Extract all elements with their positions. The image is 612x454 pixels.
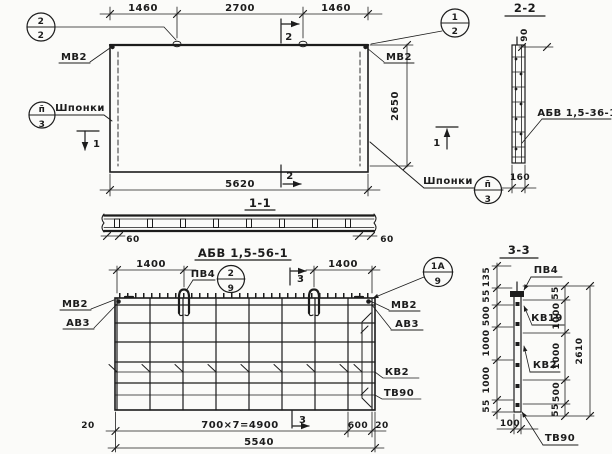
reinforcement-plan: 1400 1400 3 ПВ4 2 9 1А — [60, 258, 453, 453]
notch-break-line — [361, 313, 371, 407]
dim-20-right: 20 — [375, 421, 389, 431]
detail-marker-2-9: 2 9 — [217, 266, 245, 295]
detail-marker-1-2: 1 2 — [371, 9, 469, 44]
dim-160: 160 — [502, 165, 536, 193]
section-cut-3-top: 3 — [290, 268, 306, 285]
dim-1460-right: 1460 — [321, 3, 351, 14]
dim-1400-right: 1400 — [306, 259, 380, 293]
panel-engineering-drawing: 1460 2700 1460 2 МВ2 МВ2 2 2 — [0, 0, 612, 454]
detail-marker-2-2: 2 2 — [27, 13, 176, 41]
dim-20-left: 20 — [81, 421, 95, 431]
label-tv90-3-3: ТВ90 — [522, 412, 578, 445]
section-2-2-bar — [512, 45, 525, 163]
dim-2700: 2700 — [225, 3, 255, 14]
section-cut-1-right: 1 — [433, 127, 458, 149]
svg-text:АВ3: АВ3 — [66, 318, 90, 329]
top-dim-chain: 1460 2700 1460 — [100, 3, 382, 38]
section-1-1-rungs — [115, 219, 351, 228]
section-1-1: 1-1 60 60 АБВ 1,5-56- — [101, 196, 394, 260]
plan-view: 1460 2700 1460 2 МВ2 МВ2 2 2 — [27, 3, 503, 205]
svg-text:90: 90 — [520, 28, 530, 42]
svg-text:60: 60 — [126, 235, 140, 245]
svg-text:3: 3 — [299, 415, 306, 426]
svg-text:ТВ90: ТВ90 — [545, 433, 575, 444]
bar-label-kv2: КВ2 — [385, 367, 409, 378]
svg-text:1400: 1400 — [328, 259, 358, 270]
section-cut-2-top: 2 — [281, 19, 299, 43]
svg-text:МВ2: МВ2 — [61, 52, 87, 63]
svg-text:55: 55 — [482, 289, 492, 303]
svg-text:МВ2: МВ2 — [391, 300, 417, 311]
svg-text:5620: 5620 — [225, 179, 255, 190]
svg-text:МВ2: МВ2 — [386, 52, 412, 63]
section-cut-3-bottom: 3 — [292, 411, 309, 428]
anchor-label-mv2-grid-right: МВ2 — [370, 300, 420, 311]
anchor-label-mv2-grid-left: МВ2 — [60, 299, 114, 310]
svg-text:60: 60 — [380, 235, 394, 245]
dim-spacing: 700×7=4900 — [201, 420, 278, 431]
svg-text:2650: 2650 — [390, 91, 401, 121]
section-2-2: 2-2 90 АБВ 1,5-36-1 — [502, 1, 612, 193]
svg-text:1А: 1А — [431, 262, 445, 272]
svg-text:п̄: п̄ — [485, 180, 492, 190]
section-cut-2-bottom: 2 — [281, 165, 301, 187]
svg-text:500: 500 — [552, 382, 562, 402]
section-3-3: 3-3 — [482, 243, 594, 445]
svg-text:1000: 1000 — [482, 329, 492, 356]
svg-text:ПВ4: ПВ4 — [191, 269, 215, 280]
svg-text:9: 9 — [435, 277, 442, 287]
width-dim-5620: 5620 — [100, 174, 380, 196]
panel-outline — [110, 45, 368, 172]
svg-text:3: 3 — [39, 120, 46, 130]
left-dim-chain: 135 55 500 1000 1000 55 — [482, 263, 513, 420]
lifting-loop-right — [309, 290, 319, 316]
svg-text:2610: 2610 — [575, 337, 585, 364]
mesh-label-2-2: АБВ 1,5-36-1 — [522, 108, 612, 143]
svg-text:9: 9 — [228, 284, 235, 294]
mesh-vertical-bars — [117, 298, 372, 410]
dim-1460-left: 1460 — [128, 3, 158, 14]
dim-60-left: 60 — [101, 233, 140, 246]
svg-text:135: 135 — [482, 267, 492, 287]
svg-text:55: 55 — [551, 286, 561, 300]
section-cut-1-left: 1 — [77, 131, 100, 150]
dim-90: 90 — [519, 28, 554, 50]
svg-text:100: 100 — [500, 419, 520, 429]
anchor-label-mv2-left: МВ2 — [59, 48, 110, 63]
bottom-dim-chain: 20 700×7=4900 600 20 — [81, 412, 389, 452]
dim-1400-left: 1400 — [109, 259, 196, 293]
svg-text:160: 160 — [510, 173, 530, 183]
svg-text:АВ3: АВ3 — [395, 319, 419, 330]
svg-text:МВ2: МВ2 — [62, 299, 88, 310]
svg-text:55: 55 — [551, 403, 561, 417]
svg-text:3: 3 — [485, 195, 492, 205]
svg-text:1: 1 — [452, 13, 459, 23]
key-dashed-lines — [118, 52, 360, 166]
svg-text:п̄: п̄ — [39, 105, 46, 115]
total-dim-2610: 2610 — [575, 283, 594, 420]
drawing-sheet: 1460 2700 1460 2 МВ2 МВ2 2 2 — [0, 0, 612, 454]
section-3-3-bar — [514, 297, 521, 412]
svg-text:1: 1 — [433, 138, 440, 149]
svg-text:1000: 1000 — [482, 366, 492, 393]
dim-60-right: 60 — [353, 233, 394, 246]
svg-text:2: 2 — [38, 31, 45, 41]
keys-label-right: Шпонки — [423, 176, 473, 187]
detail-marker-1a-9: 1А 9 — [373, 258, 453, 299]
svg-text:1400: 1400 — [136, 259, 166, 270]
bar-label-tv90: ТВ90 — [384, 388, 414, 399]
svg-text:2: 2 — [228, 269, 235, 279]
svg-text:500: 500 — [482, 306, 492, 326]
section-2-2-title: 2-2 — [514, 1, 536, 15]
section-3-3-title: 3-3 — [508, 243, 530, 257]
cut-label-3: 3 — [297, 274, 304, 285]
section-1-1-title: 1-1 — [249, 196, 271, 210]
svg-text:КВ2: КВ2 — [533, 360, 557, 371]
svg-text:2: 2 — [38, 17, 45, 27]
svg-text:2: 2 — [452, 27, 459, 37]
svg-text:55: 55 — [482, 399, 492, 413]
cut-label-2: 2 — [285, 32, 292, 43]
keys-label-left: Шпонки — [55, 103, 105, 114]
svg-text:5540: 5540 — [244, 437, 274, 448]
loop-anchor-blob — [510, 291, 524, 297]
total-dim-5540: 5540 — [108, 437, 384, 452]
dim-600: 600 — [348, 421, 368, 431]
svg-text:ПВ4: ПВ4 — [534, 265, 558, 276]
svg-text:КВ19: КВ19 — [531, 313, 563, 324]
loop-label-pv4: ПВ4 — [186, 269, 215, 291]
cut-label-1: 1 — [93, 139, 100, 150]
mesh-title: АБВ 1,5-56-1 — [198, 246, 288, 260]
dim-100: 100 — [497, 414, 538, 434]
svg-text:АБВ 1,5-36-1: АБВ 1,5-36-1 — [537, 108, 612, 119]
keys-callout-left: п̄ 3 Шпонки — [29, 102, 112, 130]
keys-callout-right: Шпонки п̄ 3 — [370, 142, 503, 205]
mesh-outline — [115, 298, 375, 410]
svg-text:2: 2 — [286, 171, 293, 182]
